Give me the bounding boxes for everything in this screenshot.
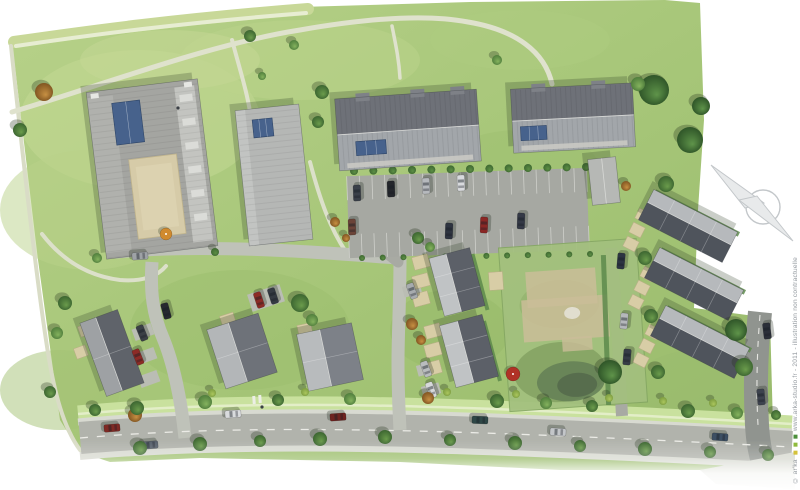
garden-patio <box>488 272 503 291</box>
shrub <box>485 165 493 173</box>
pedestrian-figure <box>260 405 263 408</box>
car <box>100 420 120 432</box>
shrub <box>563 163 571 171</box>
car <box>445 220 456 239</box>
car <box>762 319 775 339</box>
car <box>547 424 567 436</box>
car <box>422 175 433 194</box>
shrub <box>483 253 489 259</box>
shrub <box>566 251 572 257</box>
car <box>517 210 528 229</box>
car <box>469 413 488 424</box>
building-apartment-block-c <box>329 82 481 171</box>
shrub <box>380 255 386 261</box>
shrub <box>400 254 406 260</box>
bottom-fade <box>0 440 800 490</box>
car <box>353 182 364 201</box>
car <box>129 248 149 260</box>
shrub <box>359 255 365 261</box>
car <box>327 409 347 421</box>
site-plan-rendering <box>0 0 800 490</box>
pedestrian-figure <box>176 106 179 109</box>
shrub <box>447 165 455 173</box>
shrub <box>408 166 416 174</box>
shrub <box>525 252 531 258</box>
compass-north-dart <box>739 196 793 241</box>
shrub <box>505 164 513 172</box>
logo-square <box>794 435 798 439</box>
shrub <box>427 166 435 174</box>
shrub <box>504 252 510 258</box>
fade-layer <box>0 440 800 490</box>
shrub <box>543 164 551 172</box>
watermark-url: www.arka-studio.fr - 2011 - illustration… <box>792 257 799 431</box>
watermark-copyright: © ar'ka <box>792 460 799 484</box>
logo-square <box>794 443 798 447</box>
studio-logo-squares <box>792 433 799 457</box>
car <box>222 406 242 418</box>
masterplan-canvas: © ar'ka www.arka-studio.fr - 2011 - illu… <box>0 0 800 490</box>
car <box>480 214 491 233</box>
shrub <box>524 164 532 172</box>
road <box>398 258 400 430</box>
car <box>756 385 768 405</box>
car <box>348 216 359 235</box>
building-apartment-block-d <box>505 76 636 154</box>
logo-square <box>794 451 798 455</box>
building-apartment-block-a <box>80 72 217 260</box>
shrub <box>546 252 552 258</box>
copyright-watermark: © ar'ka www.arka-studio.fr - 2011 - illu… <box>793 257 800 484</box>
shrub <box>466 165 474 173</box>
building-annex-building <box>582 150 620 206</box>
car <box>457 172 468 191</box>
shrub <box>587 251 593 257</box>
car <box>387 178 398 197</box>
